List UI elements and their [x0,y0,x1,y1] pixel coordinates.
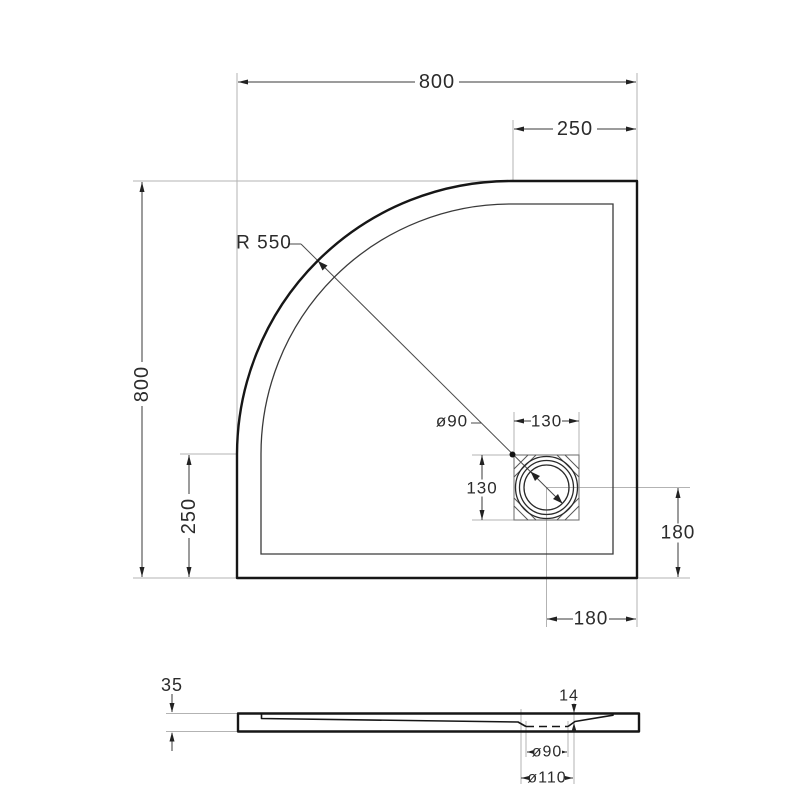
section-drain-ledge [568,714,613,727]
dim-left-height-label: 800 [131,366,153,402]
arrow-left-icon [238,80,248,85]
technical-drawing: 800 250 800 250 180 180 130 130 ø90 R 55… [0,0,800,800]
arrow-up-icon [187,455,192,465]
dim-drain-box-width-label: 130 [531,412,562,431]
section-flange-diameter-label: ø110 [527,770,566,787]
section-view [238,714,639,732]
drawing-canvas: 800 250 800 250 180 180 130 130 ø90 R 55… [0,0,800,800]
section-floor-slope [262,714,527,727]
arrow-down-icon [480,510,485,520]
section-hole-diameter-label: ø90 [532,744,563,761]
dim-top-width-label: 800 [419,71,455,93]
drain-chamfer [565,455,579,469]
section-height-label: 35 [161,675,183,695]
dim-top-corner-offset-label: 250 [557,118,593,140]
radius-diagonal-line [301,244,563,504]
radius-center-dot [510,452,516,458]
arrow-down-icon [676,567,681,577]
arrow-right-icon [626,617,636,622]
section-outline [238,714,639,732]
arrow-left-icon [514,127,524,132]
drain-diameter-label: ø90 [436,412,468,431]
arrow-up-icon [140,182,145,192]
dim-drain-bottom-label: 180 [574,609,609,630]
arrow-left-icon [514,419,524,424]
drain-chamfer [514,506,528,520]
arrow-left-icon [547,617,557,622]
dimension-lines [142,82,678,778]
arrow-down-icon [140,567,145,577]
arrow-right-icon [626,80,636,85]
dim-drain-box-height-label: 130 [466,479,497,498]
arrow-down-icon [572,704,577,713]
extension-lines [133,73,690,784]
arrowheads [140,80,681,781]
arrow-right-icon [626,127,636,132]
dimension-labels: 800 250 800 250 180 180 130 130 ø90 R 55… [131,71,696,787]
arrow-down-icon [170,703,175,713]
section-recess-depth-label: 14 [559,688,579,705]
arrow-up-icon [480,455,485,465]
arrow-up-icon [170,732,175,742]
drain-chamfer [565,506,579,520]
arrow-down-icon [187,567,192,577]
arrow-up-icon [676,488,681,498]
arrow-right-icon [569,419,579,424]
corner-radius-label: R 550 [236,233,292,254]
dim-left-corner-offset-label: 250 [178,498,200,534]
dim-drain-right-label: 180 [661,523,696,544]
